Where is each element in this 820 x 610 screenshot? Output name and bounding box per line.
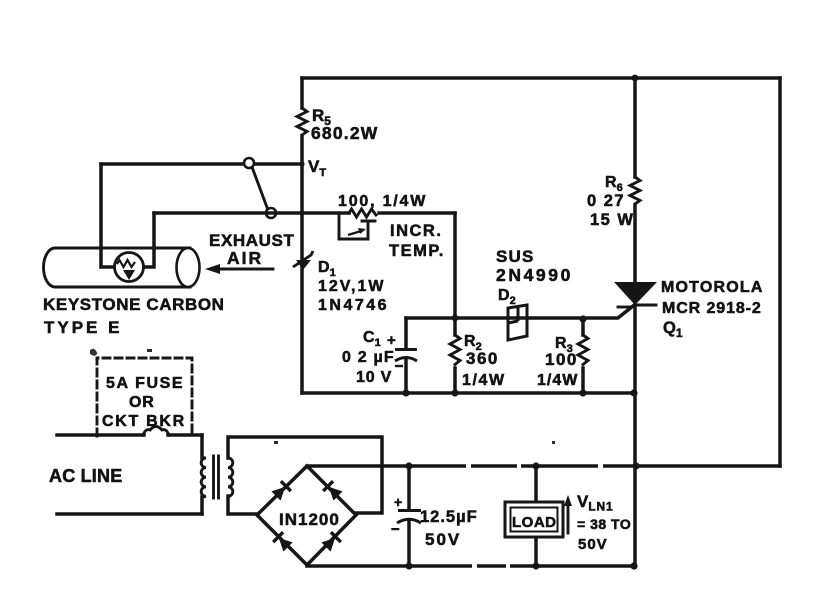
svg-text:LOAD: LOAD — [512, 514, 557, 531]
svg-text:+: + — [394, 494, 402, 510]
svg-text:+: + — [387, 332, 396, 349]
svg-text:0 27: 0 27 — [587, 192, 625, 210]
svg-text:AC LINE: AC LINE — [49, 466, 122, 486]
svg-text:IN1200: IN1200 — [279, 510, 340, 529]
svg-text:680.2W: 680.2W — [311, 123, 379, 143]
svg-text:MCR 2918-2: MCR 2918-2 — [662, 300, 762, 317]
svg-text:12V,1W: 12V,1W — [318, 278, 385, 295]
svg-text:CKT BKR: CKT BKR — [102, 413, 186, 430]
svg-text:AIR: AIR — [227, 248, 263, 268]
svg-text:1/4W: 1/4W — [462, 372, 506, 389]
svg-text:TYPE E: TYPE E — [44, 318, 122, 337]
svg-text:15 W: 15 W — [590, 211, 635, 229]
svg-text:= 38 TO: = 38 TO — [577, 516, 631, 532]
svg-text:MOTOROLA: MOTOROLA — [661, 279, 764, 296]
svg-text:360: 360 — [466, 349, 499, 368]
svg-text:−: − — [391, 521, 400, 538]
svg-text:10 V: 10 V — [356, 369, 392, 386]
svg-text:0 2 µF: 0 2 µF — [342, 349, 395, 366]
svg-text:50V: 50V — [578, 536, 608, 553]
svg-text:1N4746: 1N4746 — [318, 297, 389, 314]
svg-text:TEMP.: TEMP. — [389, 242, 445, 260]
svg-text:50V: 50V — [425, 530, 461, 549]
svg-text:12.5µF: 12.5µF — [420, 508, 478, 526]
svg-text:1/4W: 1/4W — [537, 372, 578, 389]
svg-text:5A FUSE: 5A FUSE — [106, 375, 184, 392]
svg-text:100, 1/4W: 100, 1/4W — [338, 193, 427, 210]
svg-text:SUS: SUS — [496, 247, 535, 266]
svg-text:KEYSTONE CARBON: KEYSTONE CARBON — [43, 295, 225, 314]
svg-text:100: 100 — [545, 350, 578, 369]
svg-text:INCR.: INCR. — [390, 222, 442, 240]
svg-text:2N4990: 2N4990 — [496, 265, 573, 285]
svg-text:OR: OR — [129, 394, 155, 411]
